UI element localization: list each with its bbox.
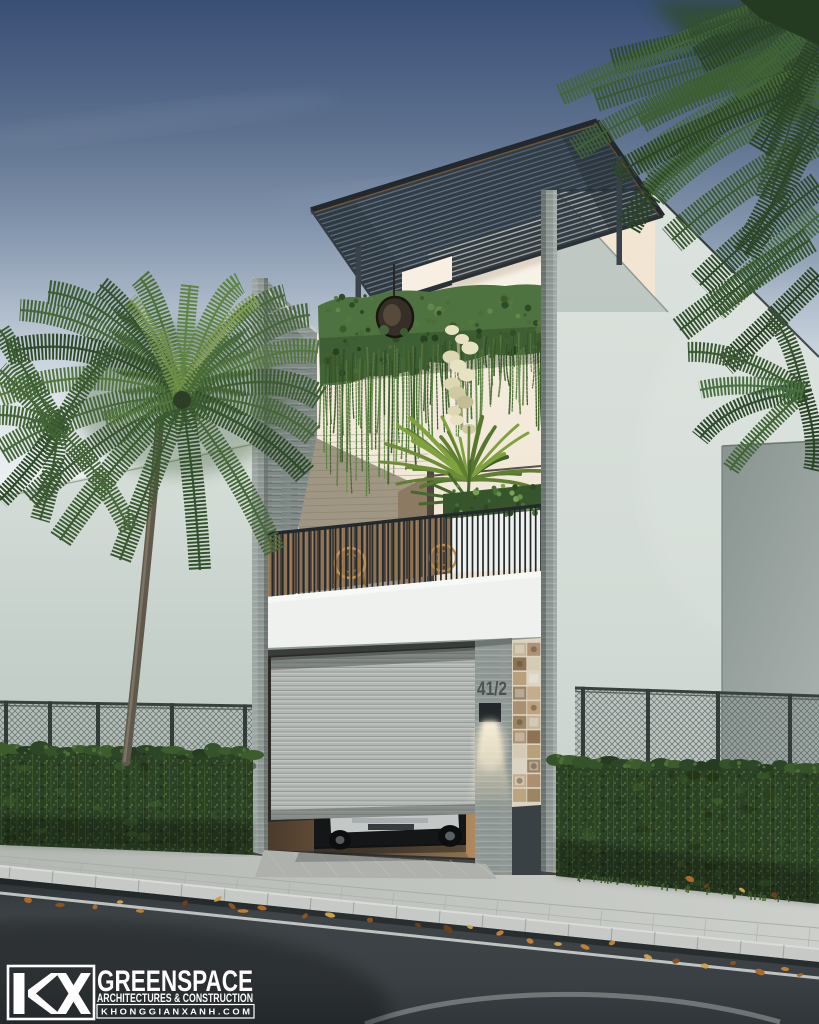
- svg-text:K H O N G G I A N X A N H . C: K H O N G G I A N X A N H . C O M: [101, 1007, 250, 1017]
- svg-text:ARCHITECTURES & CONSTRUCTION: ARCHITECTURES & CONSTRUCTION: [97, 993, 253, 1005]
- svg-text:41/2: 41/2: [477, 679, 507, 700]
